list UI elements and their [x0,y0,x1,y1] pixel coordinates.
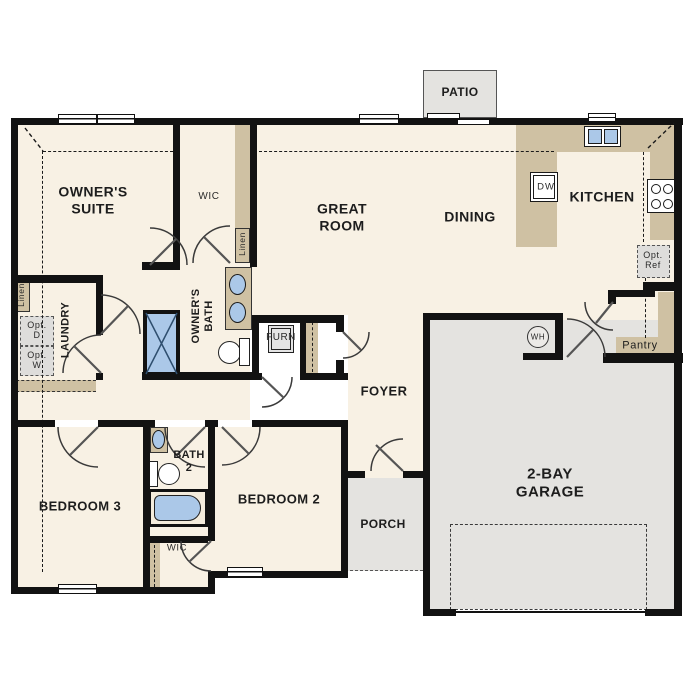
door-leaf [70,427,98,455]
room-label-owners-suite: OWNER'S SUITE [58,183,127,216]
door-leaf [567,330,593,357]
room-label-laundry: LAUNDRY [60,302,73,358]
area-label-garage: 2-BAY GARAGE [516,465,584,500]
door-leaf [150,239,176,265]
door-overlay [0,0,687,687]
shower-x-lines [146,313,177,374]
room-label-bath2: BATH 2 [173,449,204,475]
floor-plan: OWNER'S SUITE WIC OWNER'S BATH LAUNDRY G… [0,0,687,687]
room-label-bedroom2-wic: WIC [167,542,187,553]
door-leaf [101,306,128,334]
fixture-label-furnace: FURN [266,332,296,344]
door-leaf [262,377,284,398]
corner-dash [648,123,674,148]
door-leaf [222,427,249,454]
door-leaf [74,346,101,373]
area-label-patio: PATIO [442,85,479,99]
door-leaf [189,541,211,562]
fixture-label-linen-owners: Linen [237,232,247,256]
door-leaf [596,302,613,323]
room-label-bedroom2: BEDROOM 2 [238,491,320,506]
room-label-kitchen: KITCHEN [569,189,634,206]
fixture-label-dishwasher: DW [537,181,555,192]
room-label-dining: DINING [444,209,495,226]
fixture-label-opt-dryer: Opt. D [27,321,46,341]
door-leaf [204,237,230,263]
door-leaf [376,445,403,471]
area-label-porch: PORCH [360,517,405,531]
fixture-label-opt-fridge: Opt. Ref [643,251,662,271]
fixture-label-water-heater: WH [531,332,546,341]
corner-dash [25,128,43,151]
room-label-owners-wic: WIC [198,191,219,203]
fixture-label-opt-washer: Opt. W [27,351,46,371]
room-label-great-room: GREAT ROOM [317,200,367,233]
room-label-pantry: Pantry [622,340,657,353]
room-label-foyer: FOYER [361,383,408,398]
fixture-label-linen-laundry: Linen [16,283,26,307]
door-leaf [343,332,361,350]
room-label-owners-bath: OWNER'S BATH [190,289,216,344]
room-label-bedroom3: BEDROOM 3 [39,498,121,513]
